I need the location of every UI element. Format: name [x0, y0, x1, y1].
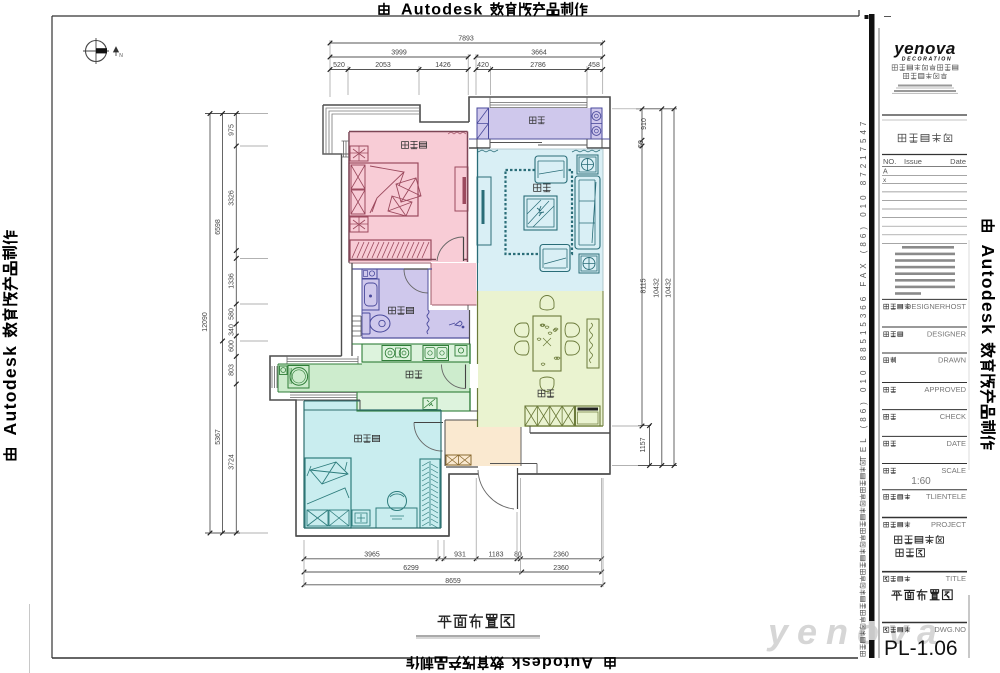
svg-text:yenova: yenova: [893, 39, 956, 58]
svg-text:PROJECT: PROJECT: [931, 520, 966, 529]
svg-text:2786: 2786: [530, 62, 546, 69]
svg-text:Autodesk: Autodesk: [0, 345, 20, 436]
svg-text:12090: 12090: [202, 312, 209, 332]
svg-text:5367: 5367: [215, 429, 222, 445]
svg-text:6299: 6299: [403, 565, 419, 572]
svg-text:803: 803: [229, 364, 236, 376]
svg-text:340: 340: [229, 324, 236, 336]
svg-text:Autodesk: Autodesk: [511, 653, 594, 670]
svg-text:Date: Date: [950, 157, 966, 166]
svg-text:A: A: [883, 169, 888, 176]
svg-text:SCALE: SCALE: [941, 466, 966, 475]
svg-text:975: 975: [229, 124, 236, 136]
svg-text:TITLE: TITLE: [946, 574, 966, 583]
svg-text:10432: 10432: [654, 278, 661, 298]
svg-text:DRAWN: DRAWN: [938, 356, 966, 365]
svg-text:6598: 6598: [215, 219, 222, 235]
svg-text:1157: 1157: [640, 437, 647, 452]
svg-text:TLIENTELE: TLIENTELE: [926, 492, 966, 501]
svg-text:8115: 8115: [641, 278, 648, 293]
svg-text:DESIGNERHOST: DESIGNERHOST: [906, 302, 966, 311]
svg-text:931: 931: [454, 551, 466, 558]
svg-text:3664: 3664: [531, 50, 547, 57]
svg-text:TEL (86) 010 88515366 FA: TEL (86) 010 88515366 FAX (86) 010 87217…: [859, 118, 868, 461]
svg-text:600: 600: [229, 340, 236, 352]
svg-text:Issue: Issue: [904, 157, 922, 166]
svg-text:3326: 3326: [229, 190, 236, 206]
svg-text:DATE: DATE: [947, 439, 966, 448]
svg-text:50: 50: [638, 140, 645, 148]
svg-text:3724: 3724: [229, 454, 236, 470]
svg-text:10432: 10432: [666, 278, 673, 298]
svg-text:520: 520: [333, 62, 345, 69]
svg-text:N: N: [119, 53, 123, 59]
svg-text:7893: 7893: [458, 36, 474, 43]
svg-text:APPROVED: APPROVED: [924, 385, 966, 394]
svg-text:DESIGNER: DESIGNER: [927, 330, 967, 339]
svg-text:3965: 3965: [364, 551, 380, 558]
svg-text:3999: 3999: [391, 50, 407, 57]
svg-text:DECORATION: DECORATION: [902, 57, 953, 63]
svg-text:910: 910: [641, 118, 648, 130]
svg-text:420: 420: [477, 62, 489, 69]
svg-text:8659: 8659: [445, 578, 461, 585]
svg-text:580: 580: [229, 308, 236, 320]
svg-text:Autodesk: Autodesk: [401, 2, 484, 19]
svg-text:CHECK: CHECK: [940, 412, 966, 421]
svg-text:DWG.NO: DWG.NO: [934, 625, 966, 634]
svg-text:Autodesk: Autodesk: [978, 245, 998, 336]
svg-text:2360: 2360: [553, 551, 569, 558]
svg-text:NO.: NO.: [883, 157, 896, 166]
svg-text:458: 458: [588, 62, 600, 69]
svg-text:PL-1.06: PL-1.06: [884, 637, 958, 660]
svg-text:2360: 2360: [553, 565, 569, 572]
svg-text:2053: 2053: [375, 62, 391, 69]
svg-text:1183: 1183: [488, 551, 503, 558]
svg-text:1:60: 1:60: [911, 476, 931, 487]
svg-text:1426: 1426: [435, 62, 451, 69]
svg-text:1336: 1336: [229, 273, 236, 289]
